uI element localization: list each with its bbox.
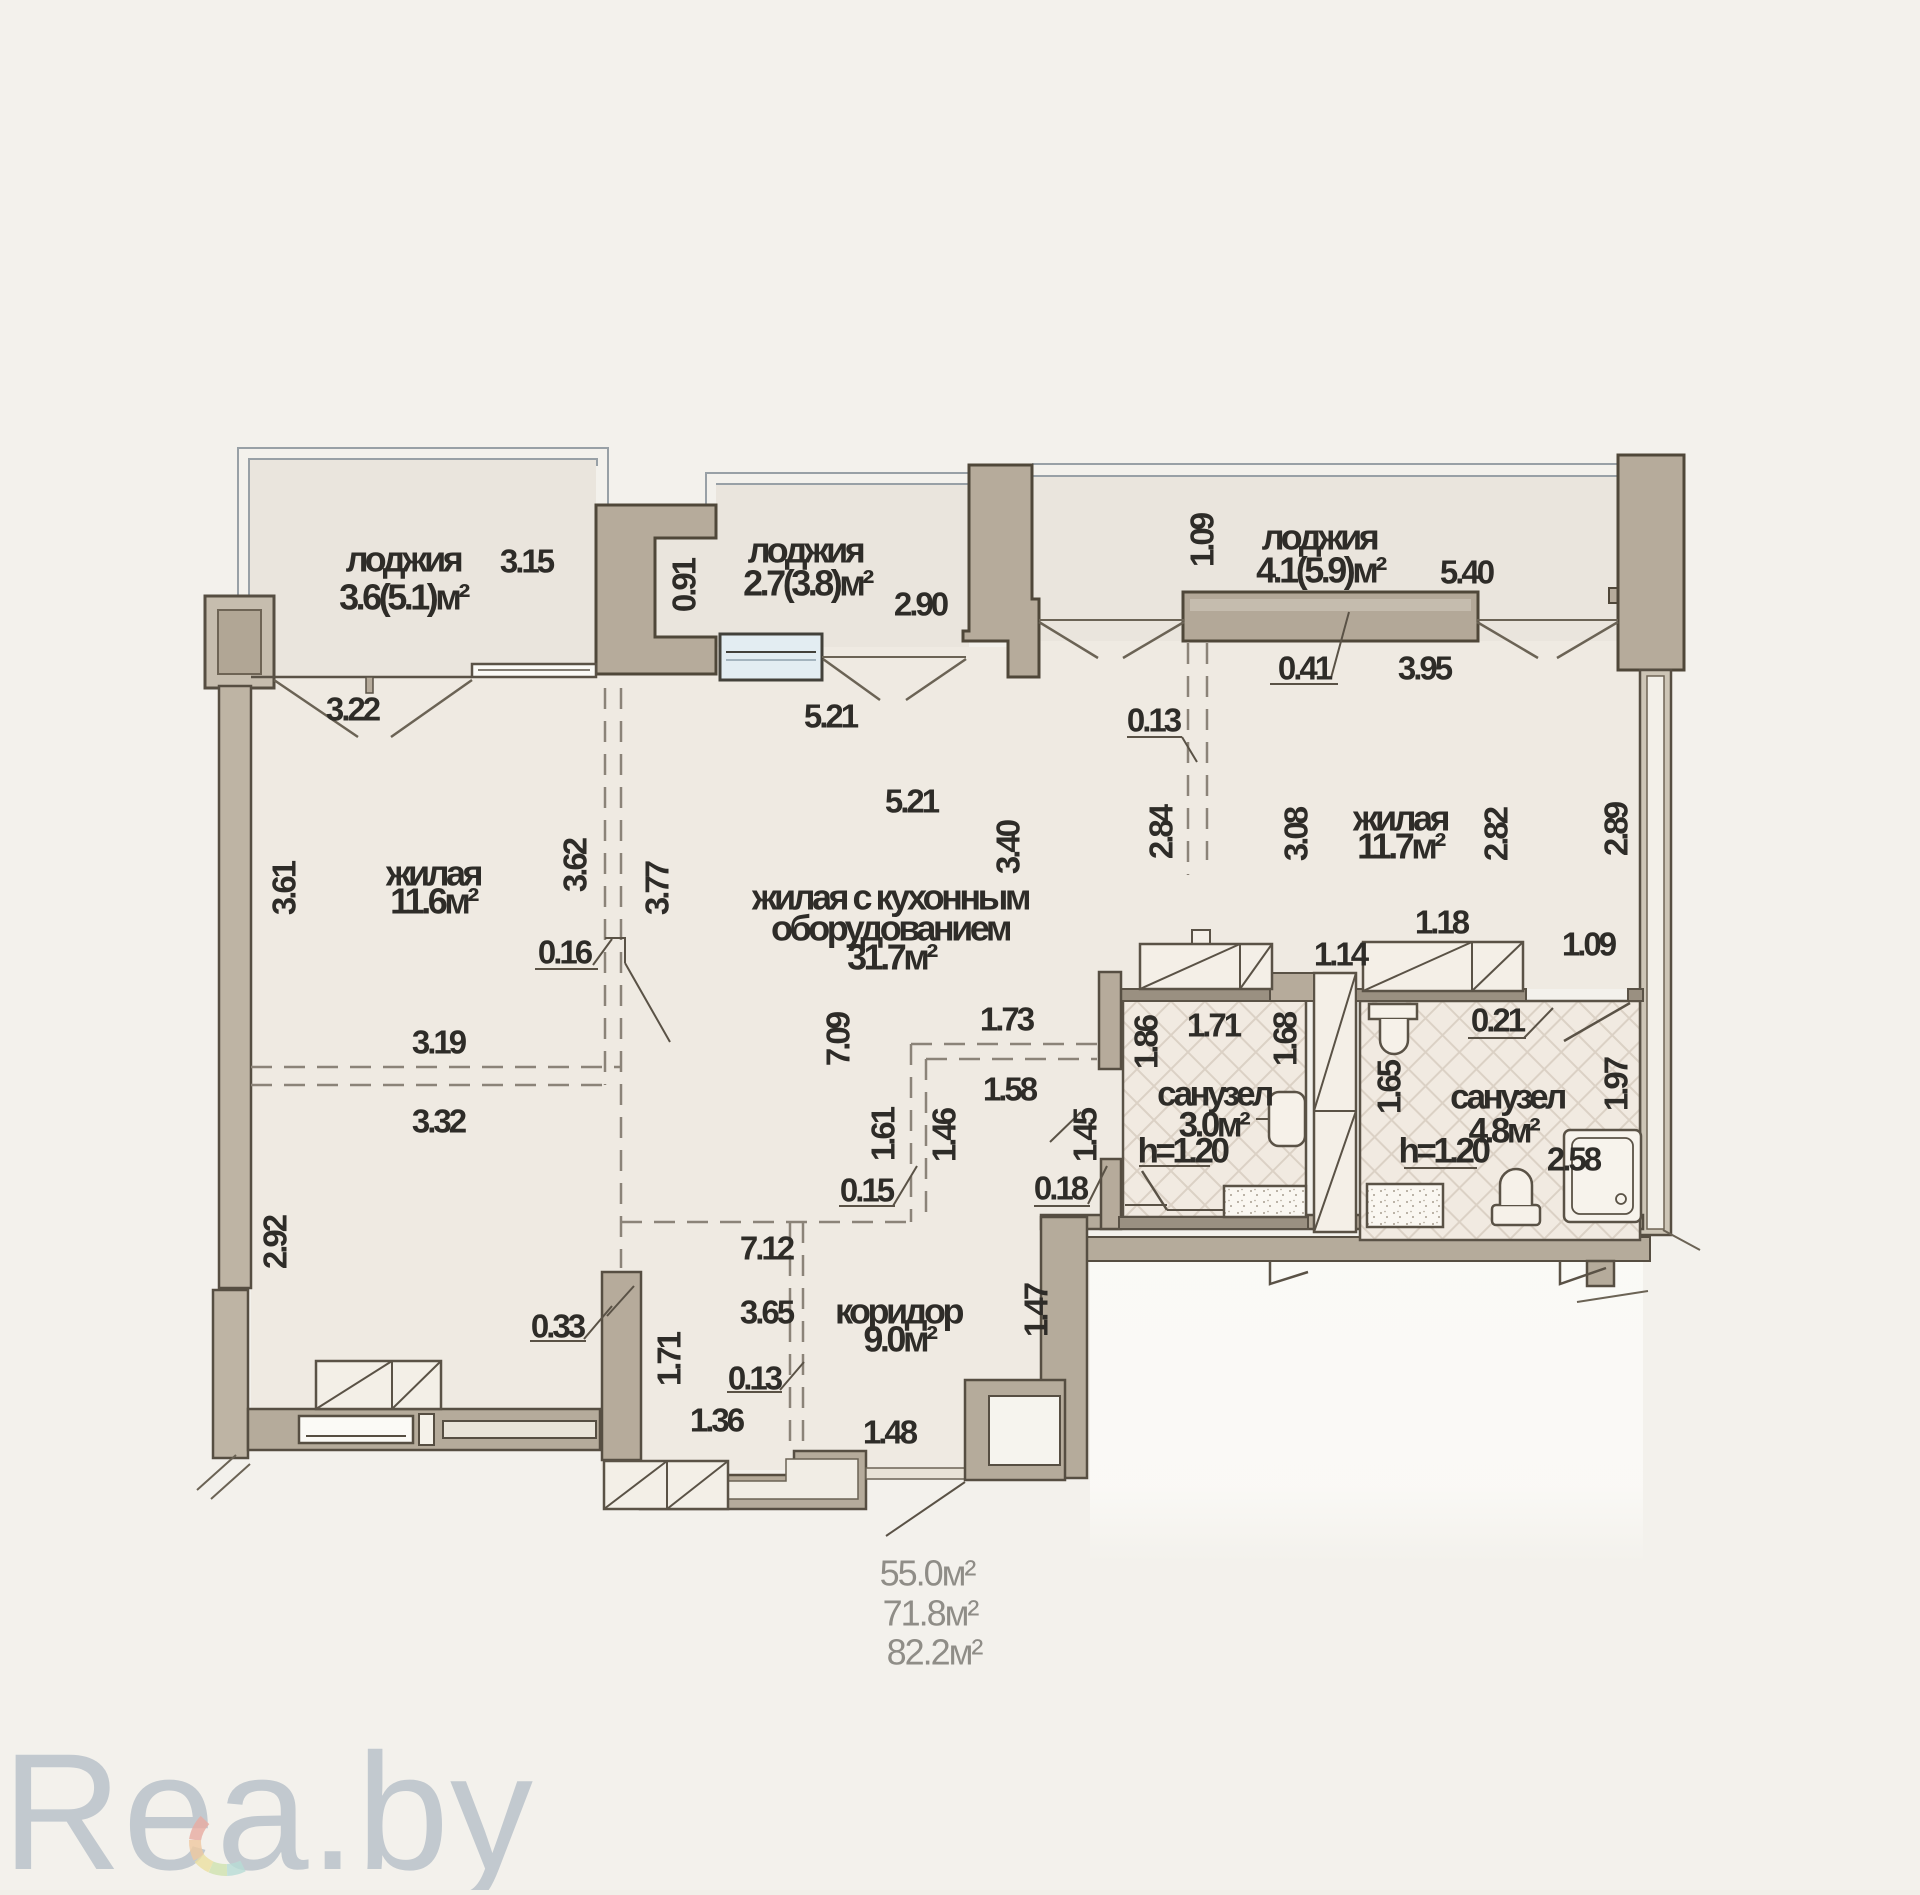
svg-text:1.09: 1.09 — [1184, 512, 1221, 567]
svg-text:0.33: 0.33 — [531, 1308, 586, 1345]
svg-text:2.84: 2.84 — [1143, 803, 1180, 859]
svg-text:3.65: 3.65 — [740, 1294, 795, 1331]
svg-text:0.41: 0.41 — [1278, 650, 1333, 687]
svg-text:55.0м²: 55.0м² — [880, 1553, 977, 1594]
svg-text:0.18: 0.18 — [1034, 1170, 1089, 1207]
svg-text:1.68: 1.68 — [1267, 1011, 1304, 1066]
svg-text:7.12: 7.12 — [740, 1230, 795, 1267]
svg-text:0.15: 0.15 — [840, 1172, 895, 1209]
svg-text:82.2м²: 82.2м² — [887, 1632, 984, 1673]
svg-text:1.47: 1.47 — [1018, 1283, 1055, 1337]
svg-text:2.89: 2.89 — [1598, 801, 1635, 856]
svg-text:лоджия: лоджия — [346, 539, 462, 580]
svg-text:1.71: 1.71 — [651, 1331, 688, 1386]
svg-text:0.91: 0.91 — [666, 557, 703, 612]
svg-text:4.1(5.9)м²: 4.1(5.9)м² — [1256, 550, 1387, 591]
svg-text:7.09: 7.09 — [820, 1011, 857, 1066]
svg-text:1.97: 1.97 — [1598, 1057, 1635, 1111]
svg-text:0.21: 0.21 — [1471, 1002, 1526, 1039]
svg-text:1.71: 1.71 — [1187, 1007, 1242, 1044]
svg-text:2.90: 2.90 — [894, 586, 948, 623]
svg-text:1.36: 1.36 — [690, 1402, 745, 1439]
svg-text:1.45: 1.45 — [1067, 1107, 1104, 1162]
svg-text:3.22: 3.22 — [326, 691, 381, 728]
svg-text:5.21: 5.21 — [804, 698, 859, 735]
svg-text:3.40: 3.40 — [990, 820, 1027, 874]
svg-text:0.16: 0.16 — [538, 934, 593, 971]
svg-text:3.19: 3.19 — [412, 1024, 467, 1061]
svg-text:2.7(3.8)м²: 2.7(3.8)м² — [743, 563, 874, 604]
svg-text:71.8м²: 71.8м² — [883, 1593, 980, 1634]
svg-text:1.48: 1.48 — [863, 1414, 918, 1451]
svg-text:3.32: 3.32 — [412, 1103, 467, 1140]
svg-text:1.18: 1.18 — [1415, 904, 1470, 941]
svg-text:1.61: 1.61 — [865, 1106, 902, 1161]
svg-text:h=1.20: h=1.20 — [1399, 1131, 1491, 1170]
svg-text:3.6(5.1)м²: 3.6(5.1)м² — [339, 577, 470, 618]
svg-text:2.92: 2.92 — [257, 1214, 294, 1269]
svg-text:1.46: 1.46 — [926, 1107, 963, 1162]
svg-text:h=1.20: h=1.20 — [1138, 1131, 1230, 1170]
svg-text:2.58: 2.58 — [1547, 1141, 1602, 1178]
svg-text:3.08: 3.08 — [1278, 806, 1315, 861]
svg-text:3.61: 3.61 — [266, 860, 303, 915]
svg-text:11.6м²: 11.6м² — [390, 881, 479, 922]
svg-text:31.7м²: 31.7м² — [847, 937, 938, 978]
svg-text:1.09: 1.09 — [1562, 926, 1617, 963]
svg-text:5.21: 5.21 — [885, 783, 940, 820]
svg-text:1.73: 1.73 — [980, 1001, 1035, 1038]
svg-text:3.95: 3.95 — [1398, 650, 1453, 687]
svg-text:3.77: 3.77 — [639, 861, 676, 915]
svg-text:0.13: 0.13 — [728, 1360, 783, 1397]
svg-text:Rea.by: Rea.by — [2, 1720, 534, 1890]
svg-text:1.65: 1.65 — [1371, 1059, 1408, 1114]
svg-text:3.62: 3.62 — [557, 837, 594, 892]
svg-text:2.82: 2.82 — [1478, 806, 1515, 861]
svg-text:3.15: 3.15 — [500, 543, 555, 580]
svg-text:5.40: 5.40 — [1440, 554, 1494, 591]
svg-text:1.86: 1.86 — [1128, 1014, 1165, 1069]
svg-text:0.13: 0.13 — [1127, 702, 1182, 739]
svg-text:1.58: 1.58 — [983, 1071, 1038, 1108]
svg-text:1.14: 1.14 — [1314, 936, 1370, 973]
svg-text:11.7м²: 11.7м² — [1357, 826, 1446, 867]
svg-text:9.0м²: 9.0м² — [863, 1319, 938, 1360]
